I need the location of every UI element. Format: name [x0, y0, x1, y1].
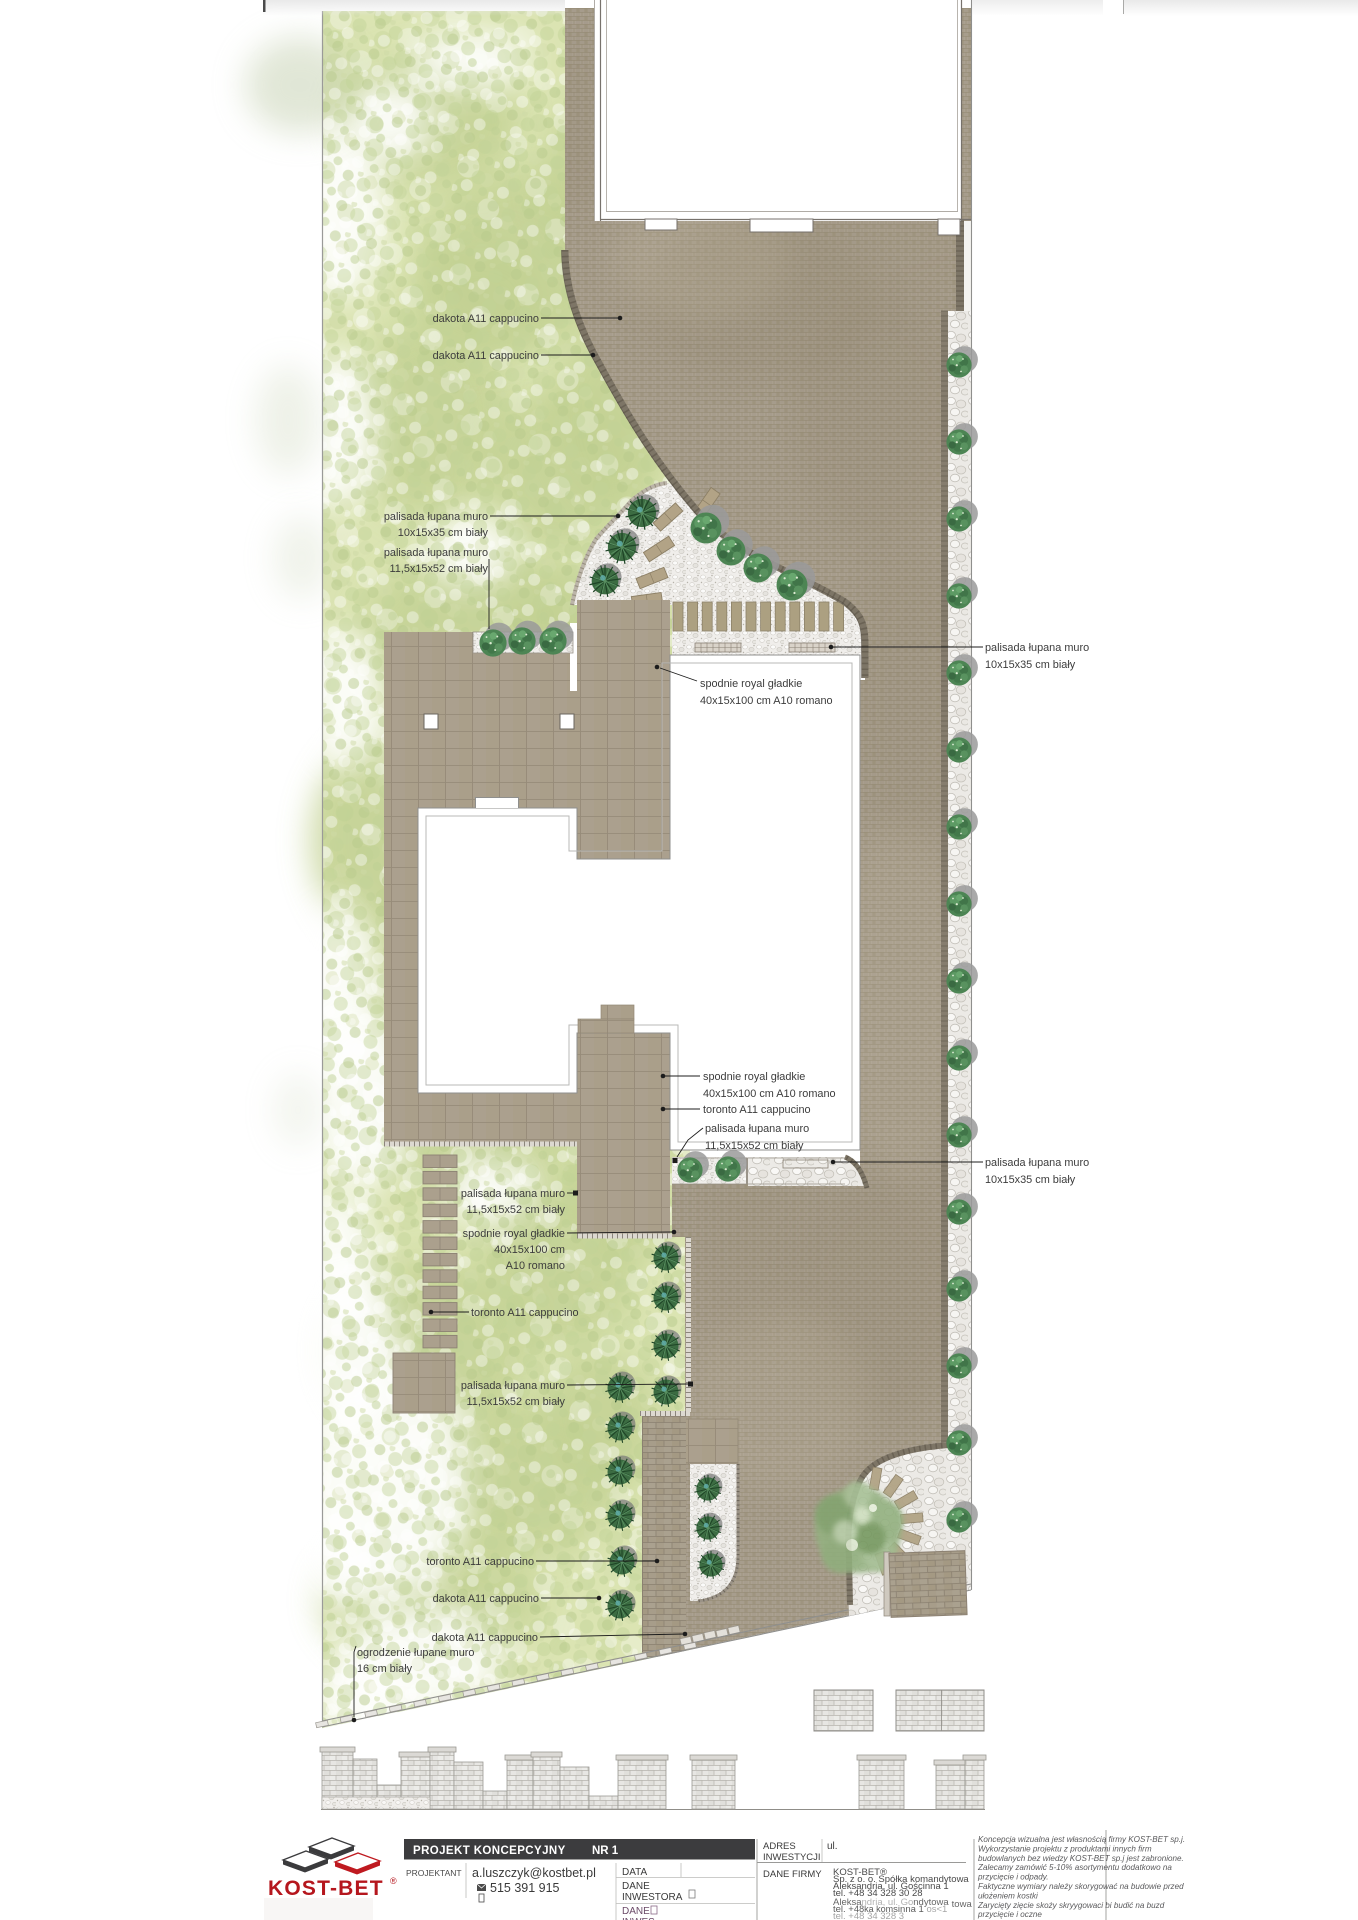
svg-text:palisada łupana muro: palisada łupana muro: [985, 642, 1089, 654]
svg-text:11,5x15x52 cm biały: 11,5x15x52 cm biały: [390, 563, 489, 575]
svg-text:40x15x100 cm A10 romano: 40x15x100 cm A10 romano: [700, 695, 833, 707]
svg-text:11,5x15x52 cm biały: 11,5x15x52 cm biały: [705, 1140, 804, 1152]
svg-text:KOST-BET: KOST-BET: [268, 1877, 384, 1900]
svg-text:11,5x15x52 cm biały: 11,5x15x52 cm biały: [467, 1396, 566, 1408]
svg-text:40x15x100 cm A10 romano: 40x15x100 cm A10 romano: [703, 1088, 836, 1100]
svg-text:10x15x35 cm biały: 10x15x35 cm biały: [398, 527, 489, 539]
svg-text:dakota A11 cappucino: dakota A11 cappucino: [433, 1593, 539, 1605]
svg-text:Faktyczne wymiary należy skory: Faktyczne wymiary należy skorygować na b…: [978, 1882, 1184, 1891]
svg-text:palisada łupana muro: palisada łupana muro: [461, 1188, 565, 1200]
svg-text:Zarycięty zięcie skoży skryyg: Zarycięty zięcie skoży skryygowaci bi bu…: [977, 1901, 1165, 1910]
svg-text:A10 romano: A10 romano: [506, 1260, 565, 1272]
svg-text:budowlanych bez wiedzy KOST-BE: budowlanych bez wiedzy KOST-BET sp.j jes…: [978, 1854, 1184, 1863]
svg-text:palisada łupana muro: palisada łupana muro: [384, 511, 488, 523]
svg-text:DATA: DATA: [622, 1867, 648, 1878]
svg-text:PROJEKTANT: PROJEKTANT: [406, 1868, 462, 1878]
svg-text:INWESTORA: INWESTORA: [622, 1892, 683, 1903]
svg-text:palisada łupana muro: palisada łupana muro: [384, 547, 488, 559]
svg-text:®: ®: [390, 1876, 397, 1886]
svg-text:przycięcie i odpady.: przycięcie i odpady.: [977, 1873, 1048, 1882]
svg-text:a.luszczyk@kostbet.pl: a.luszczyk@kostbet.pl: [472, 1866, 596, 1880]
svg-text:10x15x35 cm biały: 10x15x35 cm biały: [985, 1174, 1076, 1186]
svg-text:515 391 915: 515 391 915: [490, 1881, 560, 1895]
svg-text:tel. +48 34 328 3: tel. +48 34 328 3: [833, 1911, 904, 1920]
svg-text:ogrodzenie łupane muro: ogrodzenie łupane muro: [357, 1647, 474, 1659]
svg-text:przycięcie i oczne: przycięcie i oczne: [977, 1910, 1042, 1919]
svg-text:Koncepcja wizualna jest własno: Koncepcja wizualna jest własnością firmy…: [978, 1835, 1185, 1844]
svg-text:DANE FIRMY: DANE FIRMY: [763, 1869, 822, 1880]
svg-text:dakota A11 cappucino: dakota A11 cappucino: [433, 313, 539, 325]
svg-text:Zalecamy zamówić 5-10% asor: Zalecamy zamówić 5-10% asortymentu dodat…: [977, 1863, 1172, 1872]
svg-text:DANE: DANE: [622, 1906, 650, 1917]
svg-text:DANE: DANE: [622, 1881, 650, 1892]
svg-text:PROJEKT KONCEPCYJNY: PROJEKT KONCEPCYJNY: [413, 1845, 566, 1857]
svg-text:toronto A11 cappucino: toronto A11 cappucino: [471, 1307, 579, 1319]
svg-text:40x15x100 cm: 40x15x100 cm: [494, 1244, 565, 1256]
svg-text:ADRES: ADRES: [763, 1841, 796, 1852]
svg-text:ułożeniem kostki: ułożeniem kostki: [978, 1891, 1038, 1900]
svg-text:INWESTYCJI: INWESTYCJI: [763, 1852, 821, 1863]
svg-text:spodnie royal gładkie: spodnie royal gładkie: [703, 1071, 805, 1083]
svg-text:Wykorzystanie projektu z pr: Wykorzystanie projektu z produktami inny…: [978, 1844, 1152, 1853]
svg-text:NR 1: NR 1: [592, 1845, 619, 1857]
svg-text:11,5x15x52 cm biały: 11,5x15x52 cm biały: [467, 1204, 566, 1216]
svg-text:spodnie royal gładkie: spodnie royal gładkie: [463, 1228, 565, 1240]
svg-text:palisada łupana muro: palisada łupana muro: [461, 1380, 565, 1392]
svg-text:10x15x35 cm biały: 10x15x35 cm biały: [985, 659, 1076, 671]
svg-text:16 cm biały: 16 cm biały: [357, 1663, 413, 1675]
svg-text:toronto A11 cappucino: toronto A11 cappucino: [426, 1556, 534, 1568]
svg-text:palisada łupana muro: palisada łupana muro: [985, 1157, 1089, 1169]
svg-text:spodnie royal gładkie: spodnie royal gładkie: [700, 678, 802, 690]
svg-text:ul.: ul.: [827, 1841, 838, 1852]
svg-text:dakota A11 cappucino: dakota A11 cappucino: [433, 350, 539, 362]
svg-text:dakota A11 cappucino: dakota A11 cappucino: [432, 1632, 538, 1644]
svg-text:palisada łupana muro: palisada łupana muro: [705, 1123, 809, 1135]
svg-text:toronto A11 cappucino: toronto A11 cappucino: [703, 1104, 811, 1116]
